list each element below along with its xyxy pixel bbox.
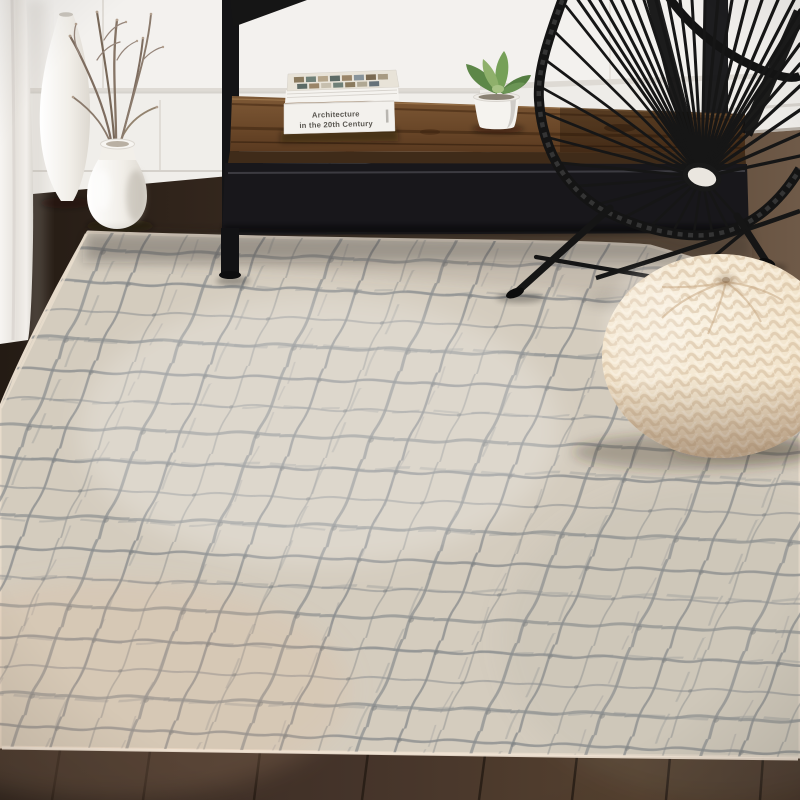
rug-product-photo: Architecture in the 20th Century	[0, 0, 800, 800]
scene-photo: Architecture in the 20th Century	[0, 0, 800, 800]
vignette	[0, 0, 800, 800]
